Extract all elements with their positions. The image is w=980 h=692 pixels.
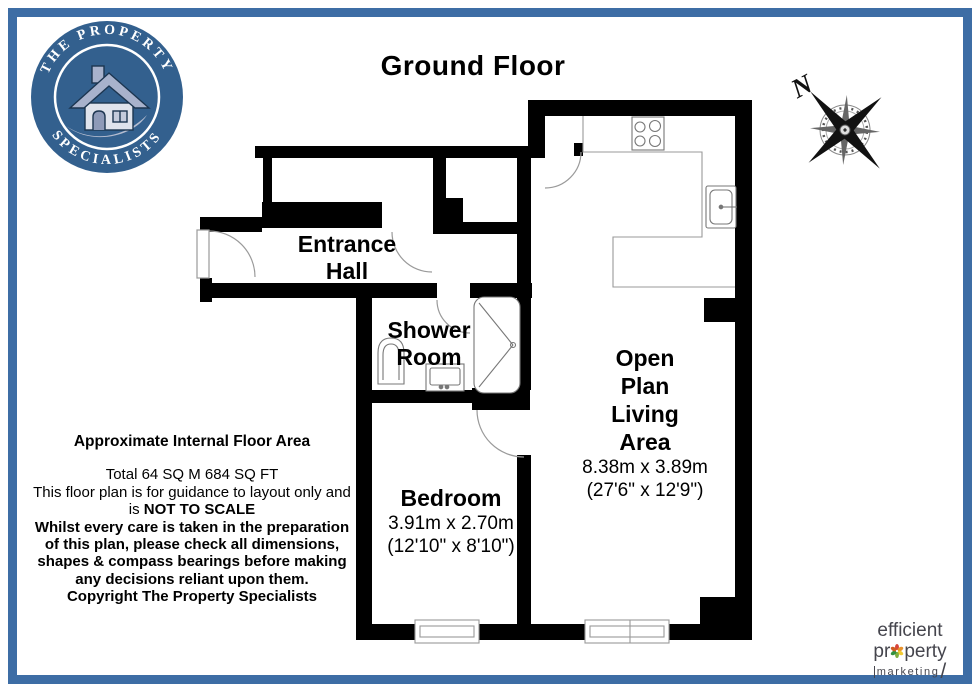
compass-north-label: N	[785, 68, 819, 105]
living-room-window	[585, 620, 669, 643]
property-specialists-logo: THE PROPERTY SPECIALISTS	[31, 21, 183, 173]
living-area-label: Open Plan Living Area 8.38m x 3.89m (27'…	[582, 344, 708, 502]
wall-stub	[704, 298, 736, 322]
bedroom-dims-imperial: (12'10" x 8'10")	[387, 535, 514, 558]
kitchen-sink-icon	[706, 186, 737, 228]
hob-icon	[632, 117, 664, 150]
disclaimer-heading: Approximate Internal Floor Area	[33, 433, 351, 450]
floor-plan-page: N THE PROPERTY SPECIALISTS	[0, 0, 980, 692]
living-dims-metric: 8.38m x 3.89m	[582, 456, 708, 479]
front-door	[197, 230, 255, 278]
bedroom-window	[415, 620, 479, 643]
pinwheel-icon	[890, 644, 904, 658]
page-title: Ground Floor	[381, 50, 566, 82]
bedroom-name: Bedroom	[387, 485, 514, 512]
shower-enclosure-icon	[474, 297, 520, 393]
bedroom-label: Bedroom 3.91m x 2.70m (12'10" x 8'10")	[387, 485, 514, 558]
shower-room-label: Shower Room	[387, 317, 470, 371]
entrance-hall-label: Entrance Hall	[298, 231, 396, 285]
efficient-property-marketing-logo: efficient prperty marketing/	[862, 621, 958, 680]
living-room-door	[545, 152, 581, 188]
not-to-scale-text: NOT TO SCALE	[144, 501, 255, 518]
bedroom-dims-metric: 3.91m x 2.70m	[387, 512, 514, 535]
compass-rose: N	[773, 58, 916, 202]
kitchen-fixtures	[583, 116, 737, 287]
hall-cupboard-door	[392, 232, 432, 272]
living-dims-imperial: (27'6" x 12'9")	[582, 479, 708, 502]
bedroom-door	[477, 410, 524, 457]
disclaimer-note: Approximate Internal Floor Area Total 64…	[33, 433, 351, 606]
